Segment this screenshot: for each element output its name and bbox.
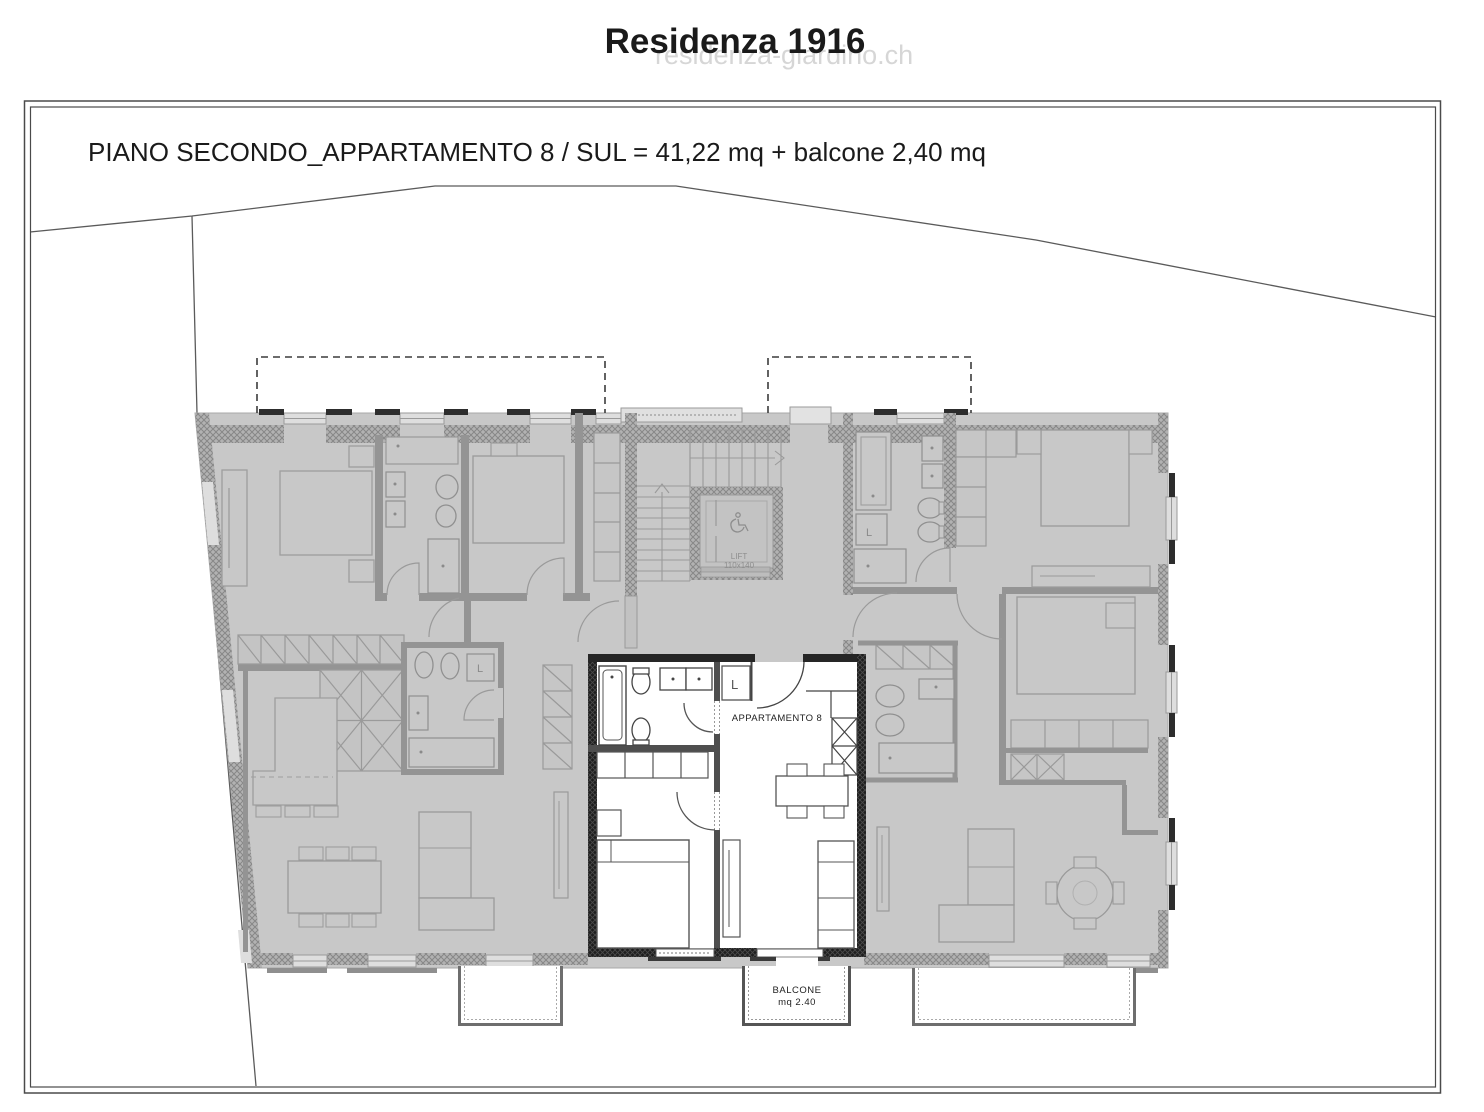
svg-text:110x140: 110x140 xyxy=(724,561,755,570)
svg-text:BALCONE: BALCONE xyxy=(773,985,822,996)
svg-text:mq 2.40: mq 2.40 xyxy=(778,997,816,1008)
svg-text:L: L xyxy=(477,663,483,675)
svg-text:L: L xyxy=(866,527,872,539)
svg-text:Residenza 1916: Residenza 1916 xyxy=(605,22,866,61)
svg-text:L: L xyxy=(731,677,738,692)
svg-text:LIFT: LIFT xyxy=(731,552,748,561)
svg-text:APPARTAMENTO 8: APPARTAMENTO 8 xyxy=(732,713,822,724)
svg-text:PIANO SECONDO_APPARTAMENTO 8 /: PIANO SECONDO_APPARTAMENTO 8 / SUL = 41,… xyxy=(88,137,986,167)
